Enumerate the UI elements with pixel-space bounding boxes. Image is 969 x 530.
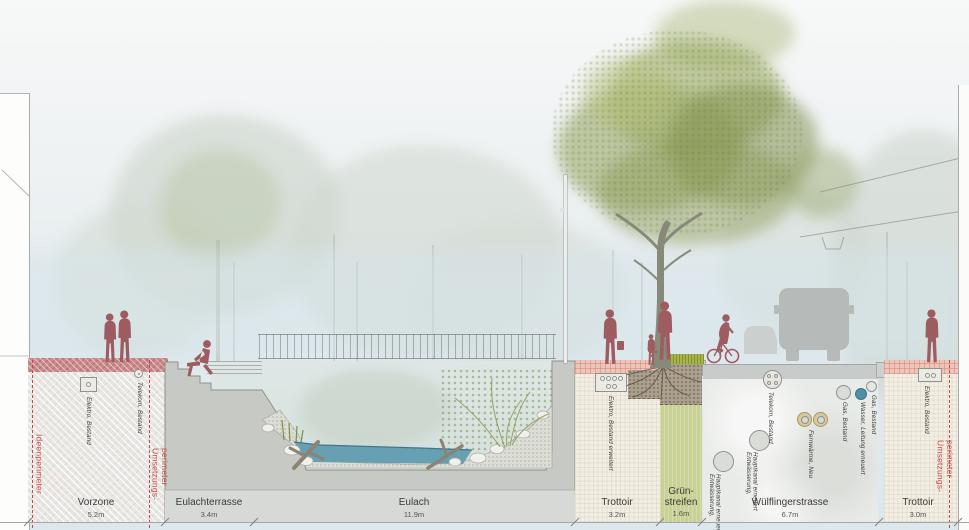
- dimension-line: [0, 0, 969, 530]
- street-cross-section: Elektro, Bestand Telekom, Bestand Elektr…: [0, 0, 969, 530]
